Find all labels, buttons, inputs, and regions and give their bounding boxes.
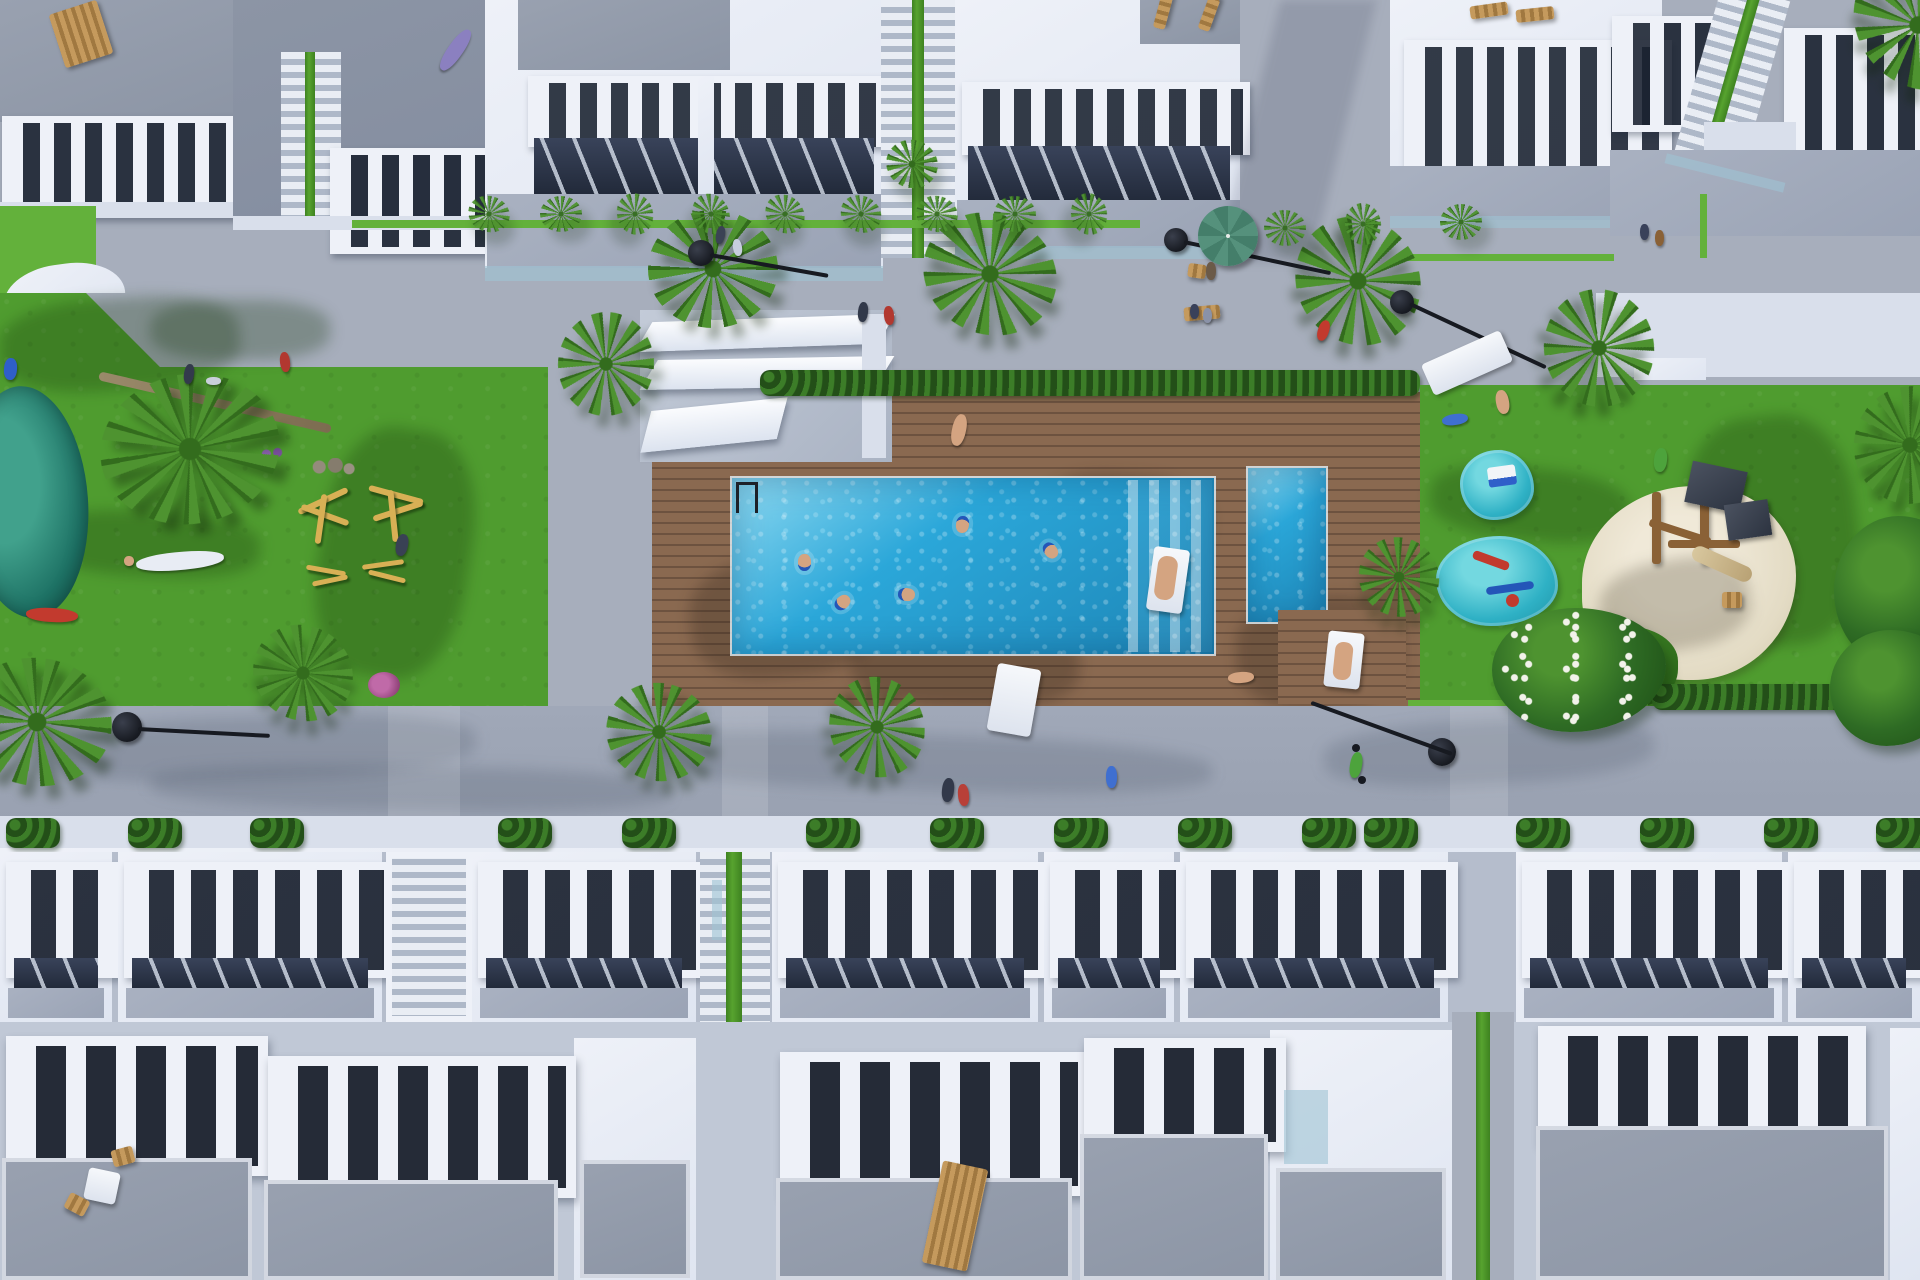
pink-flower-bush — [368, 672, 400, 698]
bicycle-wheel — [1352, 744, 1360, 752]
palm-tree — [879, 133, 944, 196]
palm-tree — [1827, 0, 1920, 116]
person — [1106, 766, 1117, 788]
person — [732, 238, 743, 256]
bicycle-wheel — [1358, 776, 1366, 784]
person — [279, 352, 291, 373]
person — [957, 784, 970, 807]
exercise-equipment-bar — [372, 500, 423, 522]
palm-tree — [1343, 521, 1456, 633]
spiky-bush — [993, 195, 1037, 234]
palm-tree — [1843, 376, 1920, 515]
terrace-chair — [1187, 263, 1207, 279]
person — [715, 225, 727, 244]
person — [1315, 319, 1332, 342]
walkway-bench — [1183, 304, 1220, 321]
spiky-bush — [612, 189, 658, 239]
swimmer — [798, 554, 811, 571]
sun-lounger-white — [986, 663, 1041, 738]
swimmer — [898, 587, 916, 601]
person — [135, 548, 224, 574]
person — [206, 377, 221, 385]
spiky-bush — [1067, 190, 1111, 239]
palm-tree — [813, 661, 941, 793]
palm-tree — [1535, 280, 1664, 415]
sun-lounger — [1198, 0, 1221, 32]
spiky-bush — [463, 190, 514, 237]
palm-tree — [88, 360, 291, 539]
swimmer — [955, 515, 970, 534]
palm-tree — [0, 648, 120, 796]
person — [26, 607, 79, 624]
palm-tree — [595, 671, 723, 793]
person — [857, 302, 869, 323]
cyclist — [1348, 751, 1364, 779]
palm-tree — [235, 606, 372, 740]
aerial-render-scene — [0, 0, 1920, 1280]
person — [941, 777, 955, 802]
street-lamp-arm — [1310, 701, 1452, 756]
spiky-bush — [912, 191, 962, 237]
swimmer — [832, 592, 853, 613]
person — [1190, 304, 1199, 319]
spiky-bush — [1263, 209, 1307, 248]
wooden-deckchair — [49, 0, 114, 68]
swimmer — [1040, 540, 1061, 561]
tree — [1830, 630, 1920, 746]
spiky-bush — [1440, 204, 1482, 240]
person — [183, 363, 196, 384]
street-lamp-arm — [138, 727, 270, 738]
person — [1640, 224, 1649, 240]
exercise-equipment-bar — [368, 569, 406, 583]
person — [1441, 412, 1468, 427]
palm-tree — [554, 308, 659, 420]
person — [436, 26, 476, 74]
spiky-bush — [685, 187, 737, 241]
person — [3, 358, 18, 381]
spiky-bush — [834, 188, 888, 240]
street-lamp-arm — [710, 253, 829, 278]
palm-tree — [1270, 192, 1446, 370]
person — [1655, 230, 1664, 246]
vegetation-and-props-overlay — [0, 0, 1920, 1280]
sun-lounger — [1469, 1, 1508, 19]
sun-lounger-white — [1421, 330, 1513, 396]
person — [883, 306, 895, 326]
spiky-bush — [757, 186, 812, 241]
person — [124, 556, 134, 566]
palm-tree — [903, 191, 1077, 357]
exercise-equipment-bar — [312, 574, 348, 586]
person — [1653, 447, 1668, 472]
exercise-equipment-bar — [362, 559, 404, 570]
green-parasol — [1198, 206, 1258, 266]
sun-lounger — [1515, 6, 1554, 23]
person — [949, 413, 969, 447]
flowering-tree — [1492, 608, 1666, 732]
person — [1494, 389, 1511, 415]
sun-lounger — [1153, 0, 1173, 30]
palm-tree — [648, 210, 778, 328]
person — [1206, 262, 1216, 280]
spiky-bush — [540, 196, 582, 232]
person — [1228, 671, 1255, 684]
spiky-bush — [1342, 201, 1383, 248]
person — [1203, 308, 1212, 323]
